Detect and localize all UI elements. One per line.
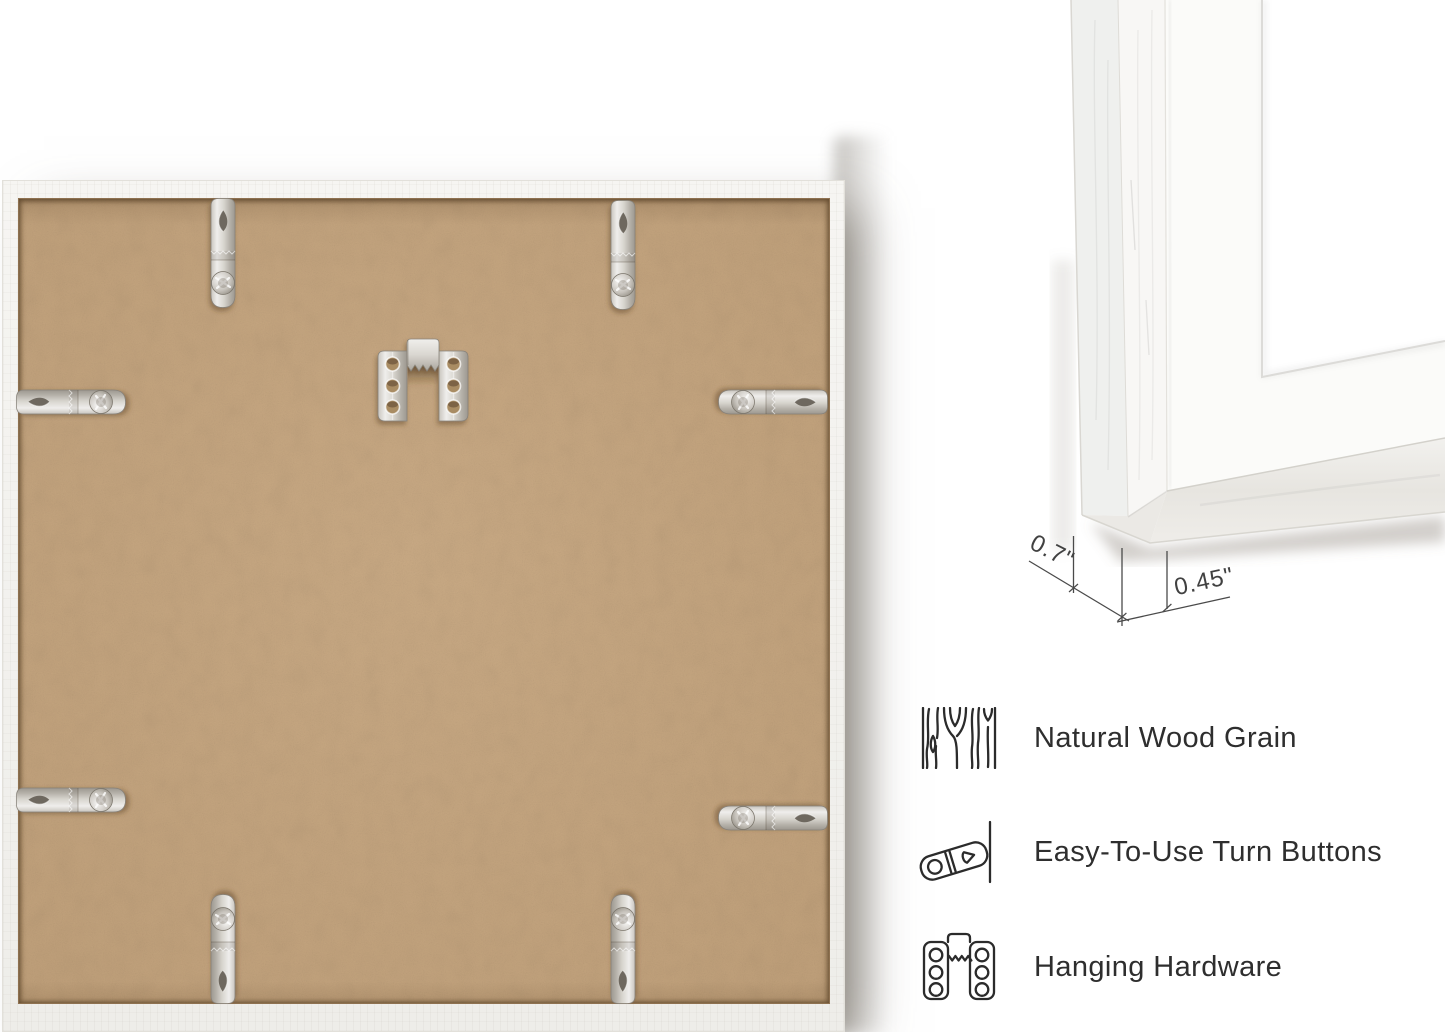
turn-button-icon xyxy=(918,819,1000,885)
product-image: 0.7" 0.45" Natural Wood Grain xyxy=(0,0,1445,1032)
hanging-hardware-icon xyxy=(918,932,1000,1002)
frame-back-photo xyxy=(2,180,845,1032)
wood-grain-icon xyxy=(918,707,1000,769)
feature-label: Natural Wood Grain xyxy=(1034,722,1297,755)
feature-turn-buttons: Easy-To-Use Turn Buttons xyxy=(918,810,1382,894)
feature-wood-grain: Natural Wood Grain xyxy=(918,696,1297,780)
frame-corner-detail: 0.7" 0.45" xyxy=(1000,0,1445,660)
feature-label: Easy-To-Use Turn Buttons xyxy=(1034,836,1382,869)
feature-label: Hanging Hardware xyxy=(1034,951,1282,984)
mdf-backing xyxy=(18,198,830,1004)
mat-opening xyxy=(1262,0,1445,377)
dimension-face-label: 0.45" xyxy=(1172,562,1237,601)
feature-hanging-hardware: Hanging Hardware xyxy=(918,925,1282,1009)
mdf-texture xyxy=(19,199,829,1003)
detail-side-shadow xyxy=(1052,260,1074,550)
